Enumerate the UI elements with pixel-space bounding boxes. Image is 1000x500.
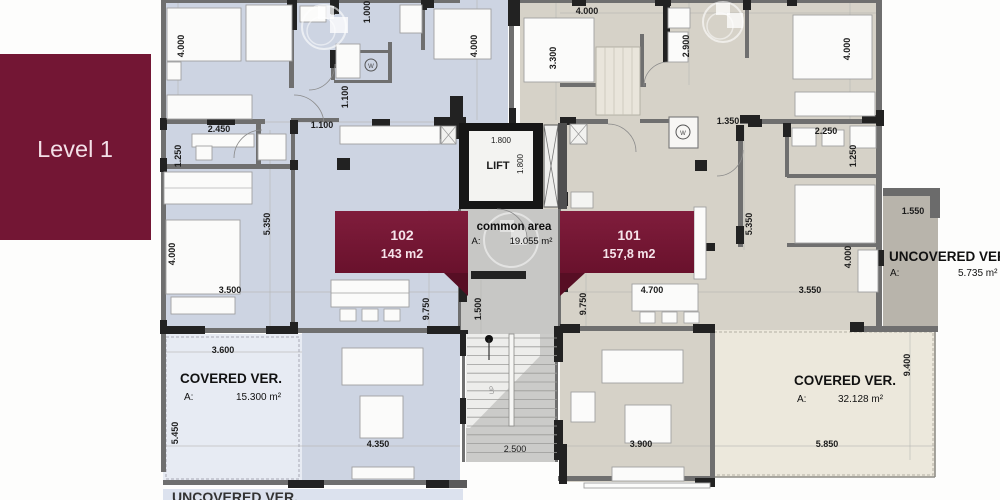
svg-text:4.000: 4.000: [167, 243, 177, 266]
svg-text:1.100: 1.100: [340, 86, 350, 109]
svg-text:1.800: 1.800: [491, 136, 512, 145]
svg-text:5.850: 5.850: [816, 439, 839, 449]
svg-text:4.000: 4.000: [176, 35, 186, 58]
svg-text:4.000: 4.000: [843, 246, 853, 269]
svg-text:9.750: 9.750: [578, 293, 588, 316]
svg-text:COVERED VER.: COVERED VER.: [180, 371, 282, 386]
svg-text:4.000: 4.000: [842, 38, 852, 61]
svg-text:W: W: [680, 131, 686, 137]
svg-text:A:: A:: [890, 268, 899, 279]
svg-text:4.000: 4.000: [576, 6, 599, 16]
svg-text:157,8 m2: 157,8 m2: [603, 247, 656, 261]
svg-text:102: 102: [390, 227, 414, 243]
svg-text:UNCOVERED VER.: UNCOVERED VER.: [172, 489, 298, 500]
svg-text:LIFT: LIFT: [486, 160, 509, 172]
svg-text:1.800: 1.800: [516, 153, 525, 174]
svg-text:5.350: 5.350: [744, 213, 754, 236]
svg-text:5.450: 5.450: [170, 422, 180, 445]
svg-text:4.700: 4.700: [641, 285, 664, 295]
svg-text:2.450: 2.450: [208, 124, 231, 134]
svg-text:143 m2: 143 m2: [381, 247, 423, 261]
svg-text:19.055 m²: 19.055 m²: [510, 236, 553, 247]
svg-text:A:: A:: [797, 394, 806, 405]
svg-text:W: W: [368, 64, 374, 70]
svg-text:9.750: 9.750: [421, 298, 431, 321]
svg-text:3.900: 3.900: [630, 439, 653, 449]
svg-text:common area: common area: [477, 221, 552, 233]
svg-text:2.250: 2.250: [815, 126, 838, 136]
svg-text:3.550: 3.550: [799, 285, 822, 295]
svg-text:1.250: 1.250: [173, 145, 183, 168]
svg-text:9.400: 9.400: [902, 354, 912, 377]
svg-text:3.500: 3.500: [219, 285, 242, 295]
svg-text:15.300 m²: 15.300 m²: [236, 392, 282, 403]
svg-text:1.000: 1.000: [362, 1, 372, 24]
svg-text:1.500: 1.500: [473, 298, 483, 321]
svg-text:32.128 m²: 32.128 m²: [838, 394, 884, 405]
svg-text:2.900: 2.900: [681, 35, 691, 58]
svg-text:1.100: 1.100: [311, 120, 334, 130]
svg-text:2.500: 2.500: [504, 444, 527, 454]
svg-text:4.350: 4.350: [367, 439, 390, 449]
svg-text:UP: UP: [490, 386, 496, 394]
svg-text:3.300: 3.300: [548, 47, 558, 70]
svg-text:101: 101: [617, 227, 641, 243]
svg-text:1.350: 1.350: [717, 116, 740, 126]
svg-text:1.250: 1.250: [848, 145, 858, 168]
svg-text:5.350: 5.350: [262, 213, 272, 236]
svg-text:Level 1: Level 1: [37, 136, 113, 162]
svg-text:4.000: 4.000: [469, 35, 479, 58]
svg-text:COVERED VER.: COVERED VER.: [794, 373, 896, 388]
svg-text:3.600: 3.600: [212, 345, 235, 355]
svg-text:1.550: 1.550: [902, 206, 925, 216]
svg-text:A:: A:: [472, 236, 481, 247]
svg-text:A:: A:: [184, 392, 193, 403]
svg-text:UNCOVERED VER.: UNCOVERED VER.: [889, 249, 1000, 264]
svg-text:5.735 m²: 5.735 m²: [958, 268, 998, 279]
